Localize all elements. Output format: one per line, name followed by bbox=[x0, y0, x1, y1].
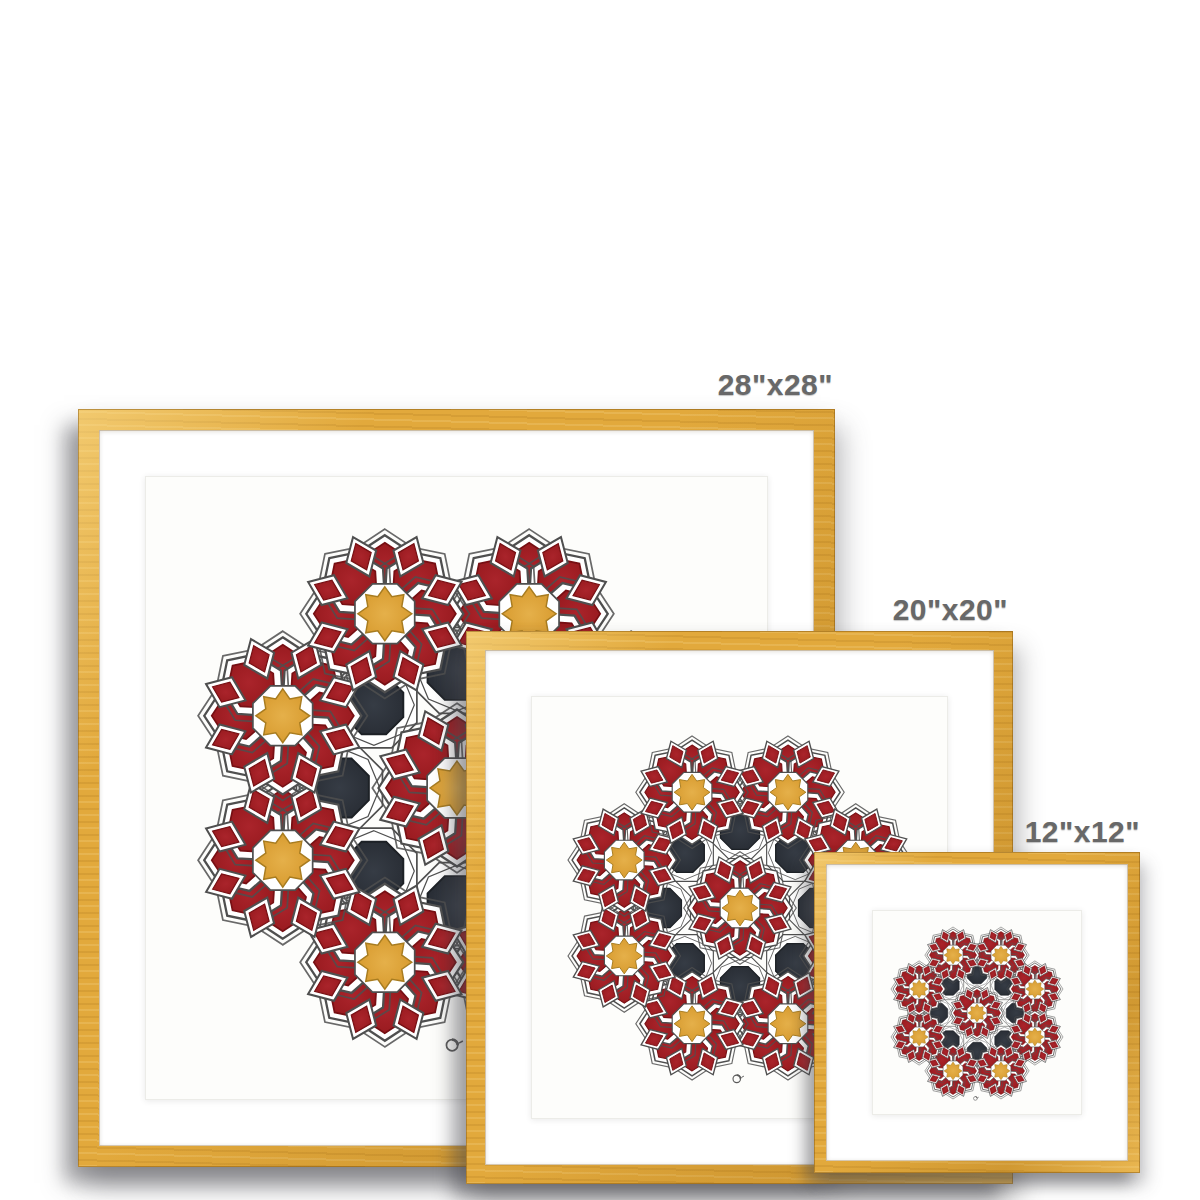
product-mockup-page: { "page": {"background": "#ffffff", "des… bbox=[0, 0, 1200, 1200]
artwork-pattern bbox=[881, 917, 1073, 1109]
size-label-28x28: 28"x28" bbox=[718, 368, 833, 401]
frame-mat bbox=[826, 864, 1128, 1161]
framed-print-12x12 bbox=[814, 852, 1140, 1173]
size-label-12x12: 12"x12" bbox=[1025, 815, 1140, 848]
art-paper bbox=[872, 910, 1082, 1115]
size-label-20x20: 20"x20" bbox=[893, 593, 1008, 626]
